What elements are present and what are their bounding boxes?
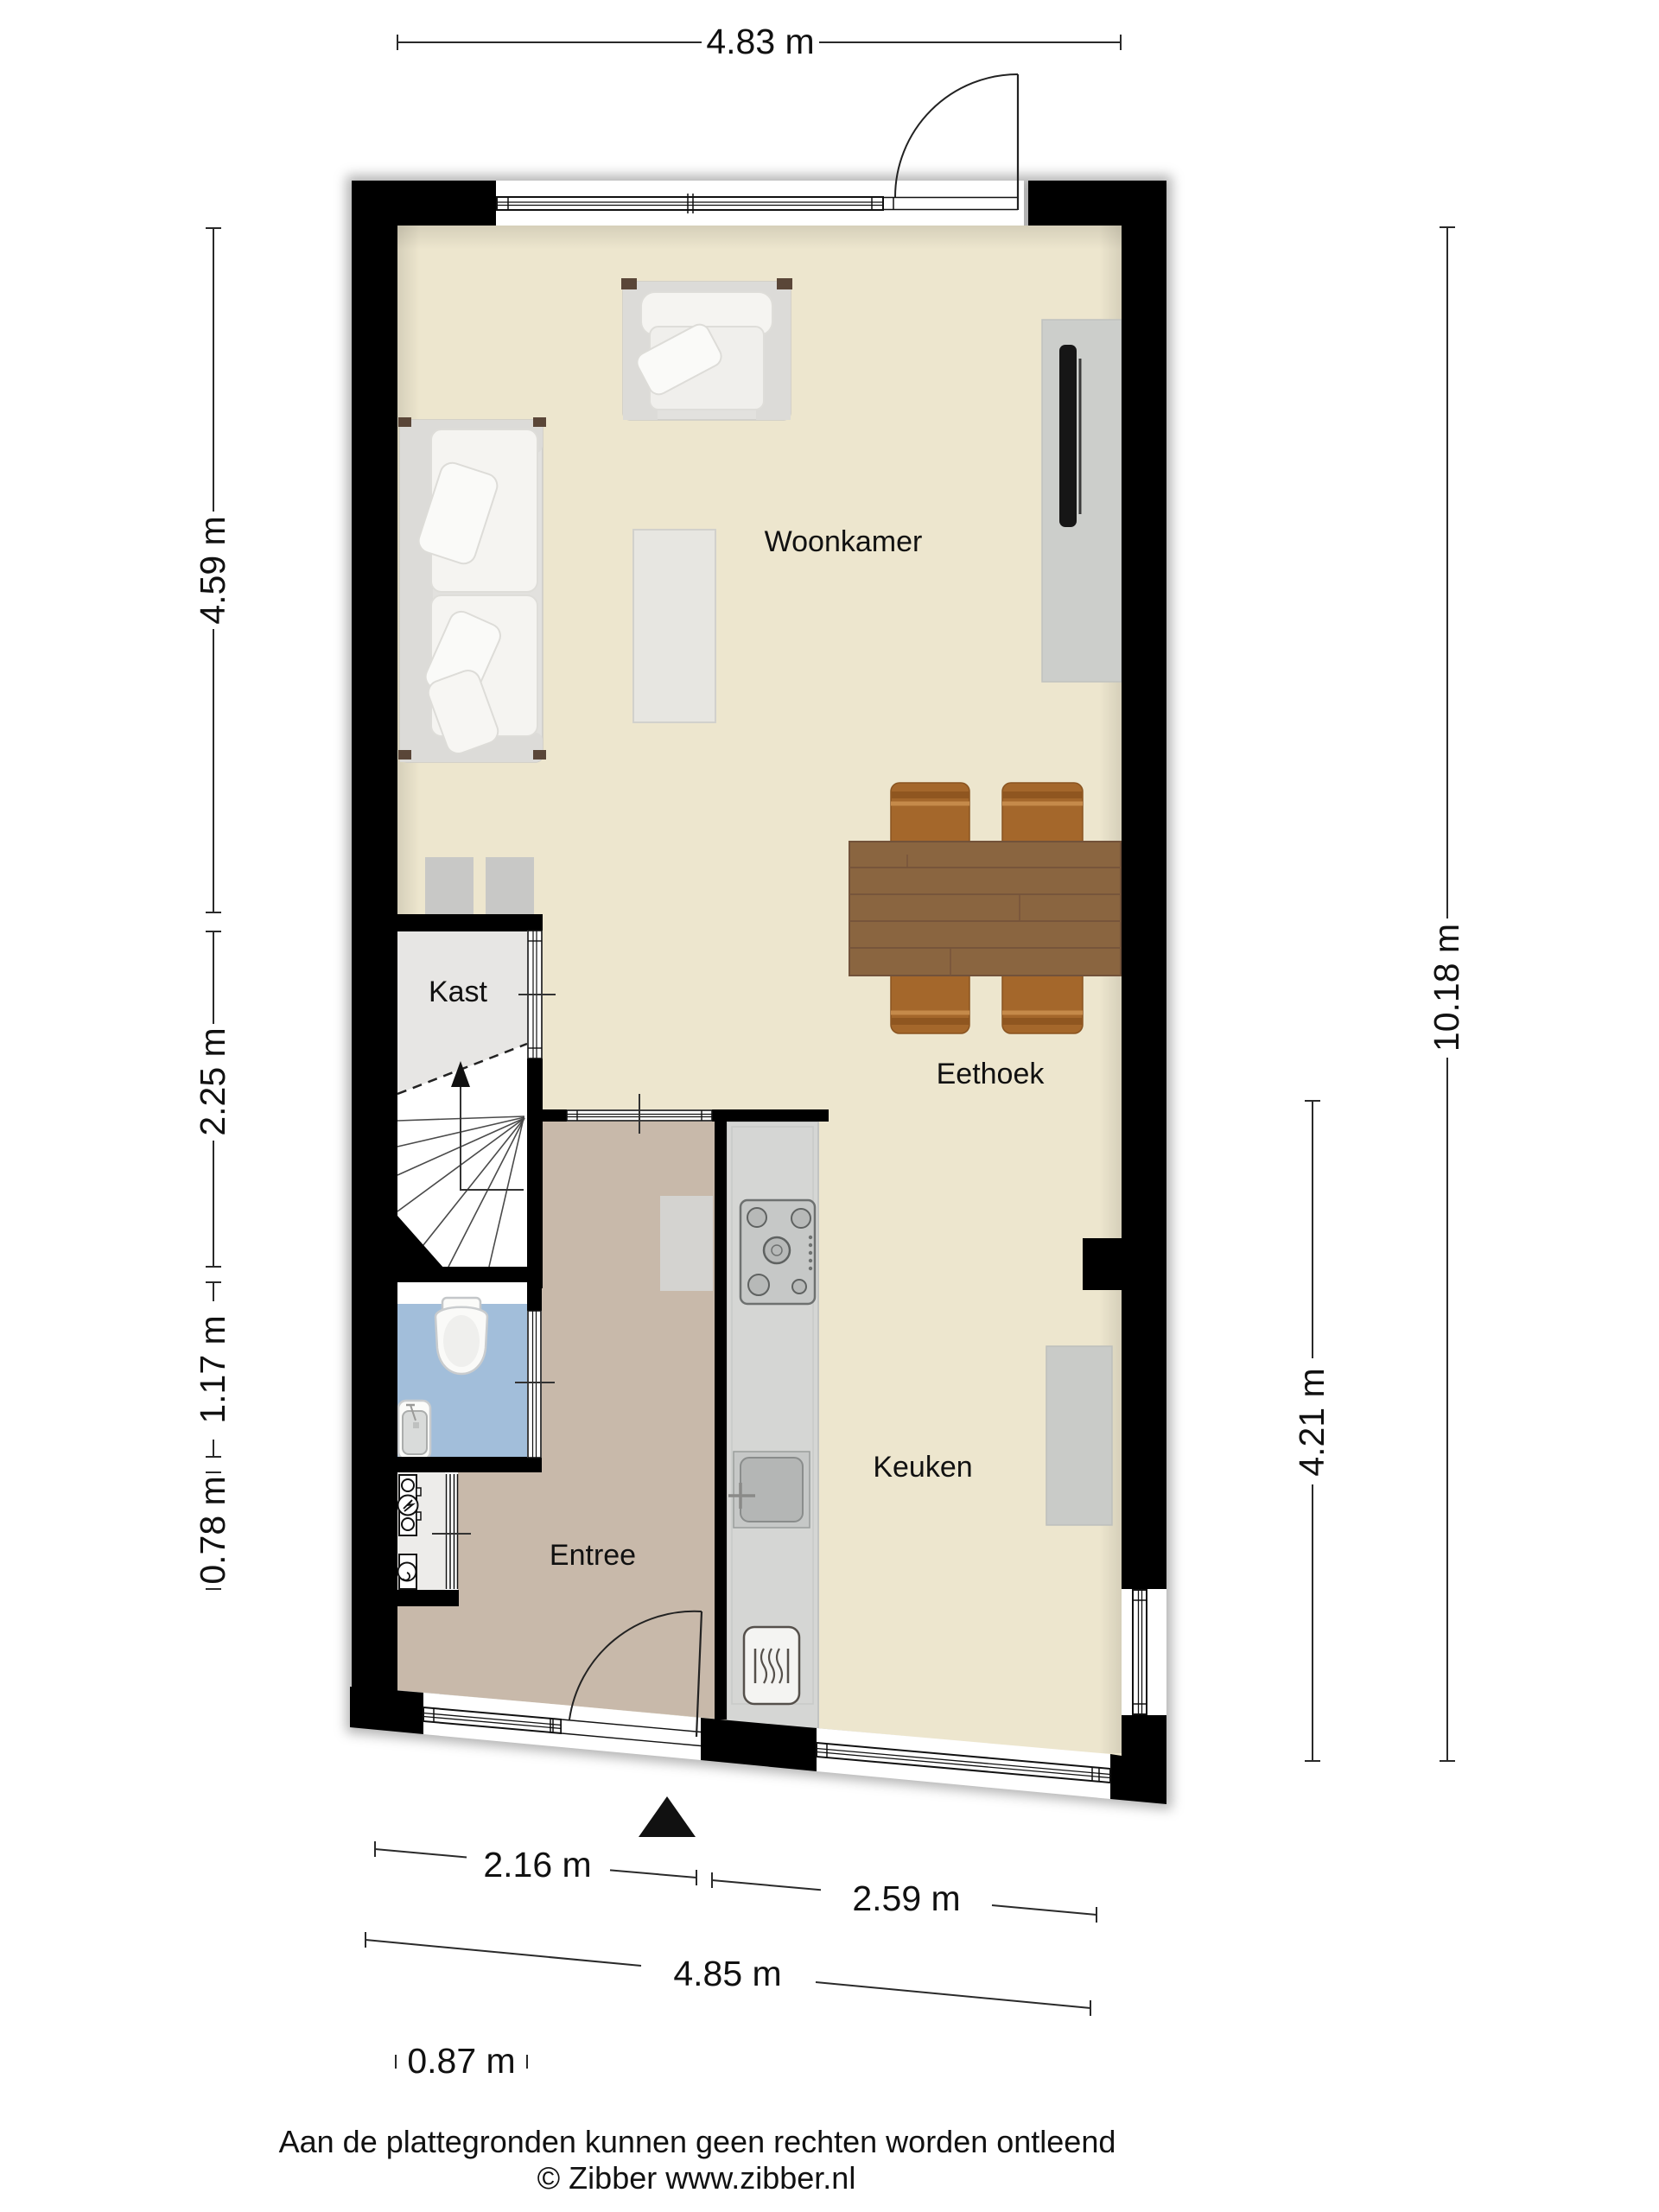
- svg-text:0.87 m: 0.87 m: [407, 2041, 515, 2081]
- svg-text:Entree: Entree: [550, 1539, 636, 1572]
- svg-text:0.78 m: 0.78 m: [193, 1476, 232, 1584]
- svg-text:2.16 m: 2.16 m: [483, 1845, 591, 1885]
- svg-text:Woonkamer: Woonkamer: [765, 525, 923, 558]
- svg-text:4.59 m: 4.59 m: [193, 516, 232, 624]
- svg-text:4.83 m: 4.83 m: [706, 22, 814, 61]
- svg-text:2.59 m: 2.59 m: [852, 1878, 960, 1918]
- svg-text:10.18 m: 10.18 m: [1427, 924, 1466, 1052]
- svg-text:Eethoek: Eethoek: [937, 1058, 1046, 1090]
- svg-text:4.21 m: 4.21 m: [1292, 1368, 1332, 1476]
- svg-text:Kast: Kast: [429, 976, 488, 1008]
- svg-text:2.25 m: 2.25 m: [193, 1027, 232, 1135]
- svg-text:Aan de plattegronden kunnen ge: Aan de plattegronden kunnen geen rechten…: [279, 2124, 1116, 2159]
- svg-text:© Zibber www.zibber.nl: © Zibber www.zibber.nl: [537, 2160, 856, 2196]
- svg-text:4.85 m: 4.85 m: [673, 1954, 781, 1993]
- svg-text:1.17 m: 1.17 m: [193, 1315, 232, 1423]
- svg-text:Keuken: Keuken: [873, 1451, 972, 1484]
